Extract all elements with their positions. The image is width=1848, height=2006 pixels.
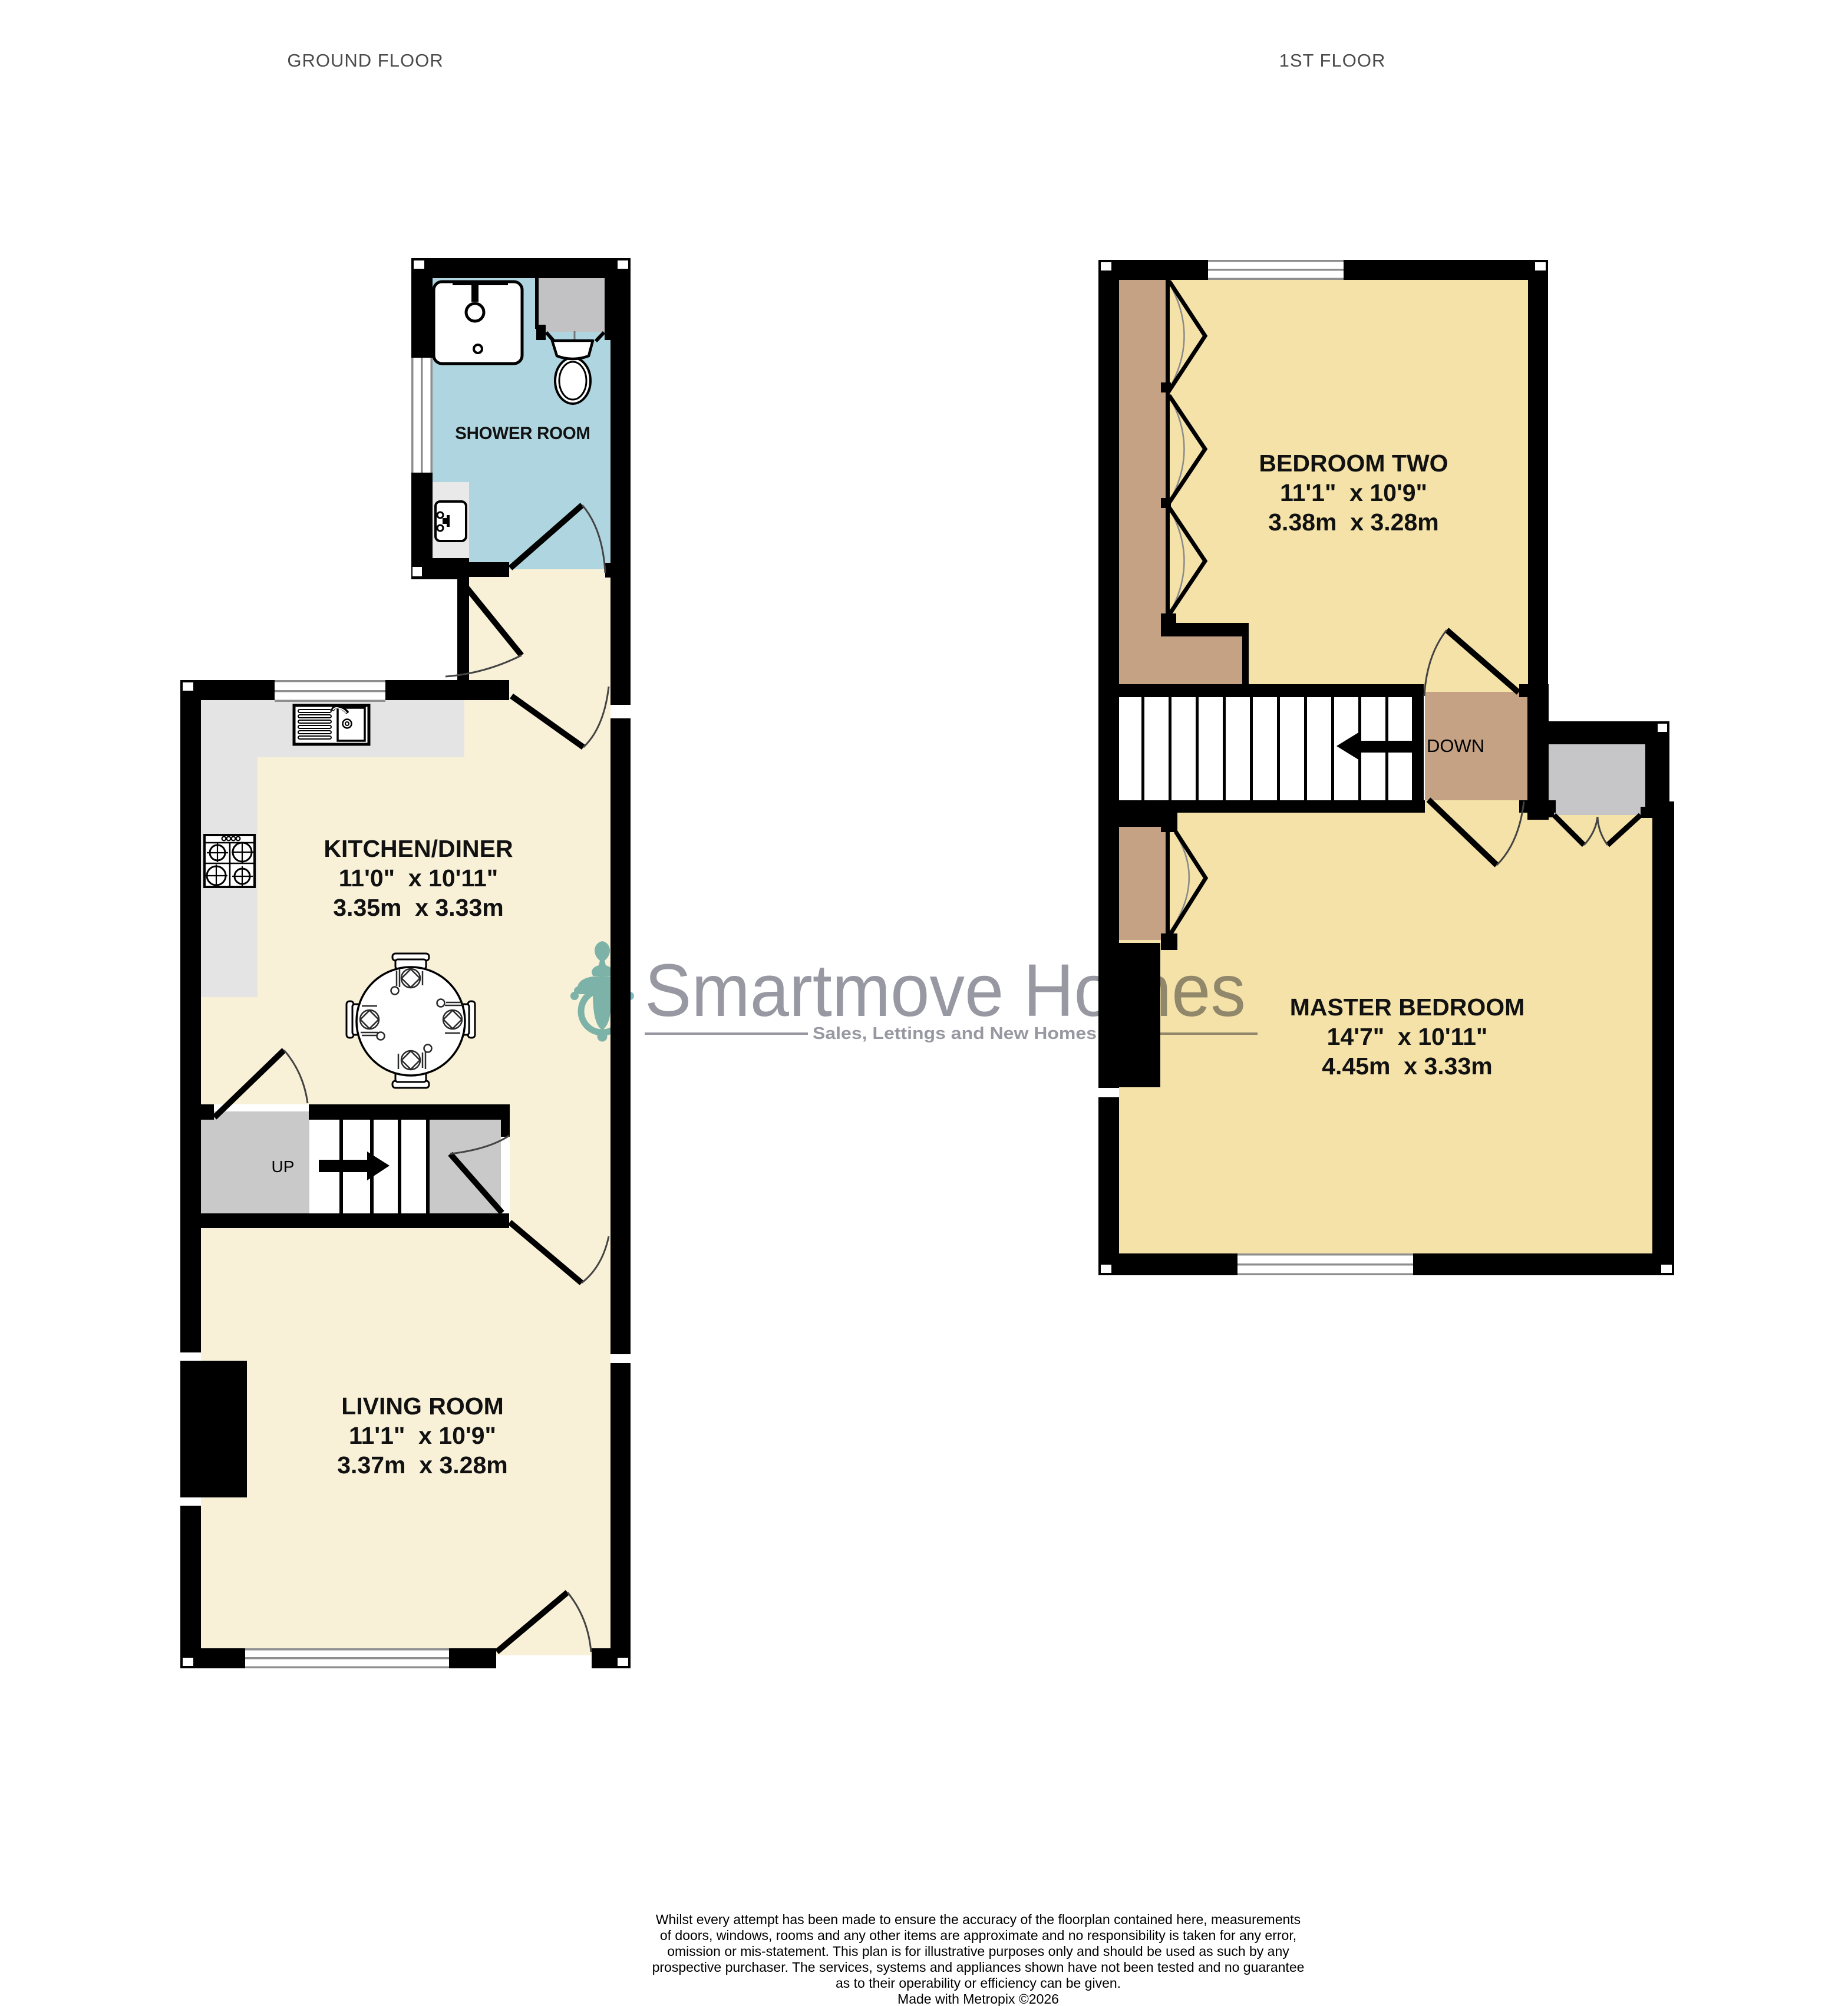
svg-text:11'1" x 10'9": 11'1" x 10'9" [349, 1422, 496, 1449]
svg-text:Made with Metropix ©2026: Made with Metropix ©2026 [897, 1991, 1059, 2006]
svg-text:MASTER BEDROOM: MASTER BEDROOM [1290, 994, 1525, 1021]
svg-text:4.45m x 3.33m: 4.45m x 3.33m [1322, 1053, 1492, 1080]
svg-text:of doors, windows, rooms and a: of doors, windows, rooms and any other i… [660, 1928, 1296, 1943]
svg-text:UP: UP [272, 1157, 295, 1176]
svg-text:3.35m x 3.33m: 3.35m x 3.33m [333, 894, 503, 921]
svg-text:Smartmove Homes: Smartmove Homes [645, 949, 1246, 1032]
svg-text:GROUND FLOOR: GROUND FLOOR [287, 50, 443, 71]
svg-text:prospective purchaser. The ser: prospective purchaser. The services, sys… [652, 1959, 1305, 1975]
svg-text:LIVING ROOM: LIVING ROOM [341, 1393, 504, 1420]
svg-text:3.37m x 3.28m: 3.37m x 3.28m [337, 1451, 507, 1479]
svg-text:BEDROOM TWO: BEDROOM TWO [1259, 450, 1448, 477]
svg-text:omission or mis-statement. Thi: omission or mis-statement. This plan is … [667, 1944, 1289, 1959]
svg-text:SHOWER ROOM: SHOWER ROOM [455, 424, 590, 443]
svg-text:1ST FLOOR: 1ST FLOOR [1279, 50, 1386, 71]
svg-text:11'1" x 10'9": 11'1" x 10'9" [1280, 479, 1427, 506]
svg-text:3.38m x 3.28m: 3.38m x 3.28m [1268, 509, 1438, 536]
svg-text:DOWN: DOWN [1427, 735, 1484, 756]
svg-text:11'0" x 10'11": 11'0" x 10'11" [339, 865, 498, 892]
svg-text:as to their operability or eff: as to their operability or efficiency ca… [836, 1975, 1121, 1991]
svg-text:KITCHEN/DINER: KITCHEN/DINER [324, 835, 513, 862]
svg-text:Sales, Lettings and New Homes: Sales, Lettings and New Homes [813, 1024, 1097, 1043]
svg-text:14'7" x 10'11": 14'7" x 10'11" [1327, 1023, 1488, 1050]
svg-text:Whilst every attempt has been: Whilst every attempt has been made to en… [656, 1912, 1301, 1927]
